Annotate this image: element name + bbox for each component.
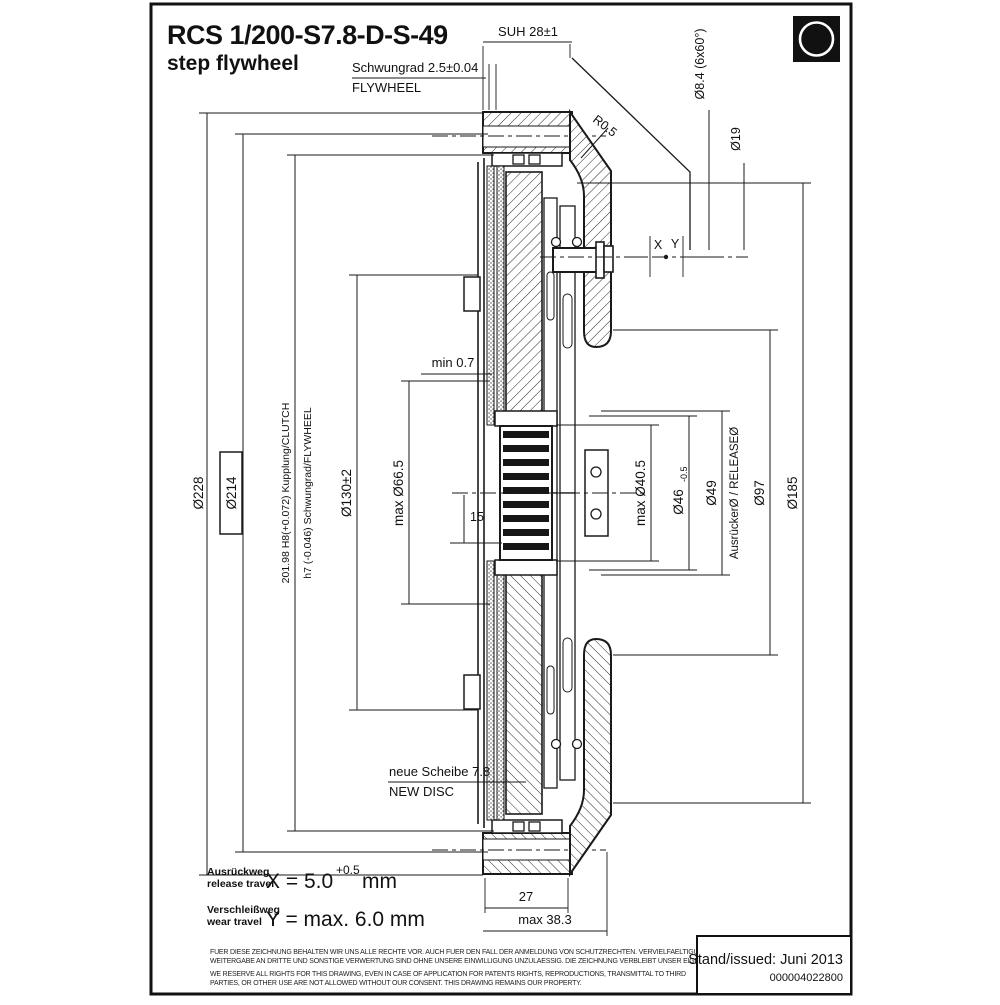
- dim-d228: Ø228: [191, 476, 206, 509]
- dim-d97: Ø97: [752, 480, 767, 506]
- zf-logo-text: ZF: [805, 30, 829, 50]
- dim-max383: max 38.3: [518, 912, 571, 927]
- hub-flange: [495, 411, 557, 426]
- release-travel-value: X = 5.0: [266, 870, 333, 893]
- dim-x: X: [654, 238, 663, 252]
- dim-bolt-circle: Ø8.4 (6x60°): [693, 28, 707, 99]
- title-block: Stand/issued: Juni 2013 000004022800: [688, 936, 851, 994]
- pivot-rivet: [573, 238, 582, 247]
- dim-d19: Ø19: [729, 127, 743, 151]
- spring-slot: [547, 272, 554, 320]
- dim-fit-flywheel: h7 (-0.046) Schwungrad/FLYWHEEL: [302, 407, 314, 579]
- issued-date: Stand/issued: Juni 2013: [688, 952, 843, 968]
- dim-d665: max Ø66.5: [391, 460, 406, 526]
- pivot-rivet: [552, 238, 561, 247]
- rim-step: [492, 153, 562, 166]
- friction-lining: [487, 166, 494, 425]
- spring-slot: [563, 294, 572, 348]
- travel-specs: Ausrückweg release travel X = 5.0 +0.5 m…: [206, 863, 425, 931]
- dim-d405: max Ø40.5: [633, 460, 648, 526]
- pressure-plate: [506, 172, 542, 425]
- travel-reference-dot: [664, 255, 668, 259]
- legal-de-line1: FUER DIESE ZEICHNUNG BEHALTEN WIR UNS AL…: [210, 949, 710, 956]
- retaining-clip: [464, 277, 480, 311]
- wear-travel-label-en: wear travel: [206, 916, 262, 928]
- rim-bolt-channel: [483, 126, 572, 147]
- dim-schwungrad: Schwungrad 2.5±0.04: [352, 60, 478, 75]
- release-travel-tolerance: +0.5: [336, 863, 360, 877]
- dim-n27: 27: [519, 889, 533, 904]
- dim-d130: Ø130±2: [339, 469, 354, 517]
- dim-y: Y: [671, 237, 680, 251]
- zf-logo: ZF: [793, 16, 840, 62]
- drawing-subtitle: step flywheel: [167, 52, 299, 75]
- legal-en-line1: WE RESERVE ALL RIGHTS FOR THIS DRAWING, …: [210, 971, 686, 978]
- document-number: 000004022800: [770, 972, 843, 984]
- release-travel-label-en: release travel: [207, 878, 274, 890]
- drawing-page: RCS 1/200-S7.8-D-S-49 step flywheel ZF: [0, 0, 1000, 1000]
- dim-suh: SUH 28±1: [498, 24, 558, 39]
- dim-new-disc-de: neue Scheibe 7.8: [389, 764, 490, 779]
- dim-d49: Ø49: [704, 480, 719, 506]
- dim-flywheel: FLYWHEEL: [352, 80, 421, 95]
- dim-n15: 15: [470, 510, 484, 524]
- rivet-head: [529, 155, 540, 164]
- dim-release-dia: AusrückerØ / RELEASEØ: [729, 427, 741, 559]
- dim-min07: min 0.7: [432, 355, 475, 370]
- legal-en-line2: PARTIES, OR OTHER USE ARE NOT ALLOWED WI…: [210, 980, 582, 987]
- hub-flange: [495, 560, 557, 575]
- release-travel-label-de: Ausrückweg: [207, 866, 269, 878]
- legal-notice: FUER DIESE ZEICHNUNG BEHALTEN WIR UNS AL…: [210, 949, 720, 987]
- friction-lining: [497, 166, 504, 425]
- rivet-head: [513, 155, 524, 164]
- technical-drawing: RCS 1/200-S7.8-D-S-49 step flywheel ZF: [0, 0, 1000, 1000]
- spacer-pin: [553, 242, 613, 278]
- dim-d46: Ø46: [671, 489, 686, 515]
- drawing-title: RCS 1/200-S7.8-D-S-49: [167, 20, 448, 50]
- wear-travel-value: Y = max. 6.0 mm: [266, 908, 425, 931]
- release-travel-unit: mm: [362, 870, 397, 893]
- dim-new-disc-en: NEW DISC: [389, 784, 454, 799]
- legal-de-line2: WEITERGABE AN DRITTE UND SONSTIGE VERWER…: [210, 958, 720, 965]
- dim-fit-clutch: 201.98 H8(+0.072) Kupplung/CLUTCH: [280, 403, 292, 584]
- dim-d214: Ø214: [224, 476, 239, 510]
- dim-d46-tol: -0.5: [679, 466, 689, 482]
- dim-d185: Ø185: [785, 476, 800, 509]
